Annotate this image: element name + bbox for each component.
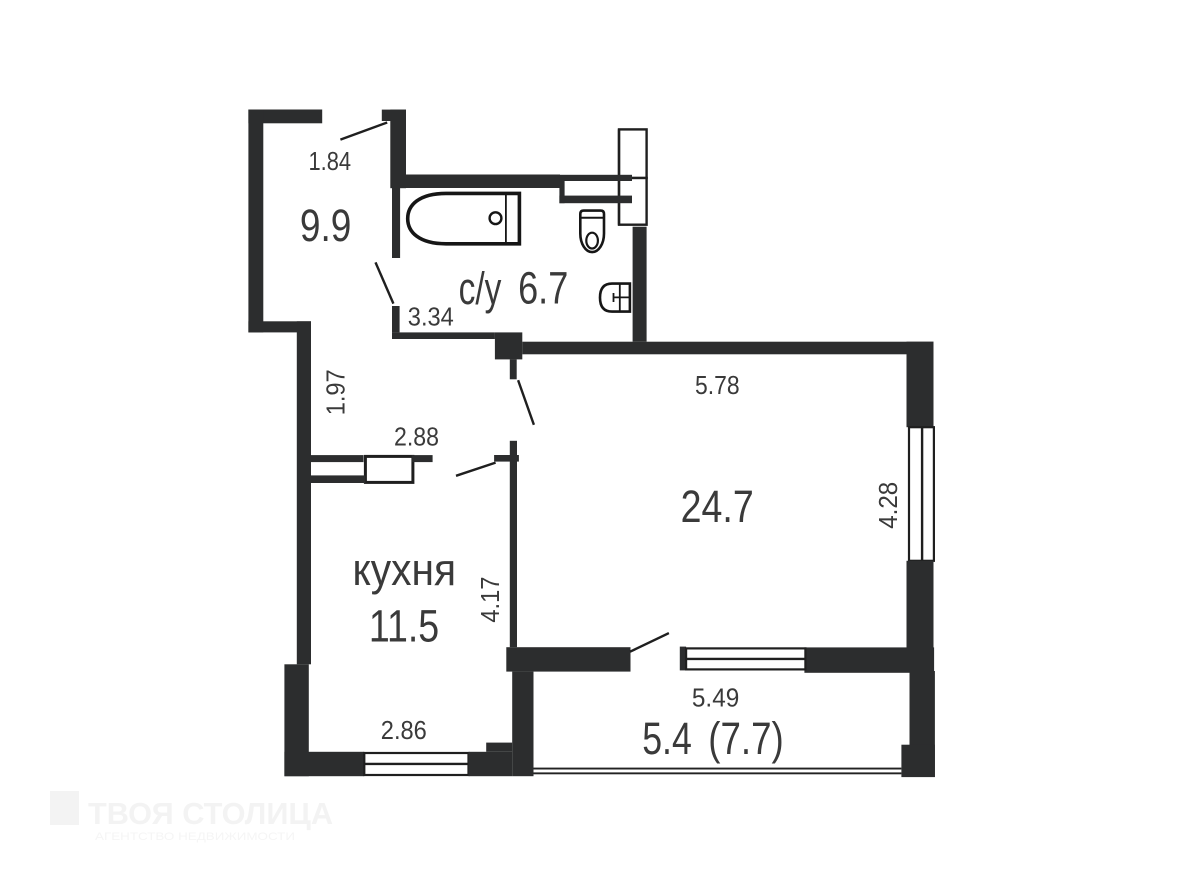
svg-text:АГЕНТСТВО НЕДВИЖИМОСТИ: АГЕНТСТВО НЕДВИЖИМОСТИ	[95, 831, 295, 843]
svg-text:4.17: 4.17	[475, 577, 505, 623]
svg-text:кухня: кухня	[353, 544, 457, 595]
svg-text:1.84: 1.84	[309, 146, 352, 176]
svg-text:24.7: 24.7	[681, 481, 754, 532]
svg-text:5.4: 5.4	[642, 713, 692, 764]
svg-text:2.86: 2.86	[381, 715, 427, 745]
svg-text:6.7: 6.7	[518, 263, 568, 314]
svg-text:5.78: 5.78	[695, 370, 740, 400]
svg-text:9.9: 9.9	[300, 200, 352, 251]
svg-text:2.88: 2.88	[394, 422, 439, 452]
svg-text:ТВОЯ СТОЛИЦА: ТВОЯ СТОЛИЦА	[88, 796, 333, 831]
svg-text:3.34: 3.34	[408, 302, 454, 332]
svg-text:с/у: с/у	[459, 263, 502, 314]
svg-text:1.97: 1.97	[321, 369, 351, 415]
svg-text:(7.7): (7.7)	[708, 713, 783, 764]
svg-text:11.5: 11.5	[369, 601, 439, 652]
svg-text:4.28: 4.28	[873, 482, 903, 529]
svg-text:5.49: 5.49	[692, 683, 739, 713]
